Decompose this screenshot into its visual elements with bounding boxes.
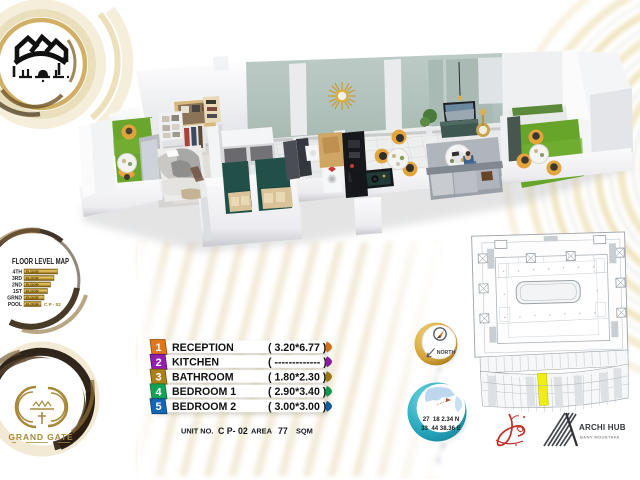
svg-text:4: 4 (155, 386, 162, 398)
svg-text:( 3.20*6.77 ): ( 3.20*6.77 ) (268, 342, 326, 354)
svg-text:( 1.80*2.30 ): ( 1.80*2.30 ) (268, 371, 326, 383)
svg-text:C P - 02: C P - 02 (44, 302, 61, 307)
svg-text:3RD: 3RD (12, 276, 22, 282)
svg-text:BEDROOM 2: BEDROOM 2 (172, 401, 236, 413)
svg-text:AREA: AREA (251, 427, 273, 436)
svg-text:3: 3 (155, 372, 161, 384)
svg-text:FLOOR: FLOOR (26, 290, 39, 294)
svg-text:GRAND GATE: GRAND GATE (8, 432, 73, 442)
svg-text:77: 77 (278, 426, 288, 436)
svg-text:1ST: 1ST (13, 289, 22, 295)
svg-text:FLOOR: FLOOR (26, 283, 39, 287)
svg-text:( 2.90*3.40 ): ( 2.90*3.40 ) (268, 386, 326, 398)
svg-text:KITCHEN: KITCHEN (172, 357, 219, 369)
svg-text:BEDROOM 1: BEDROOM 1 (172, 386, 236, 398)
svg-text:C P- 02: C P- 02 (218, 426, 248, 436)
svg-text:FLOOR: FLOOR (26, 303, 39, 307)
svg-text:NORTH: NORTH (437, 350, 456, 356)
svg-text:SQM: SQM (296, 427, 313, 436)
svg-text:2: 2 (155, 357, 161, 369)
svg-text:4TH: 4TH (13, 270, 23, 276)
svg-text:GRND: GRND (7, 296, 22, 302)
svg-text:ARCHI HUB: ARCHI HUB (579, 423, 626, 432)
svg-text:BATHROOM: BATHROOM (172, 371, 234, 383)
svg-text:FLOOR: FLOOR (26, 296, 39, 300)
svg-text:27 18 2.34 N: 27 18 2.34 N (423, 416, 460, 423)
svg-text:33 44 38.36 E: 33 44 38.36 E (421, 425, 461, 432)
svg-text:FLOOR LEVEL MAP: FLOOR LEVEL MAP (12, 257, 69, 266)
svg-text:FLOOR: FLOOR (26, 270, 39, 274)
svg-text:RECEPTION: RECEPTION (172, 342, 234, 354)
svg-text:BANY MOUSTAFA: BANY MOUSTAFA (580, 435, 620, 440)
svg-text:1: 1 (155, 342, 161, 354)
svg-text:( 3.00*3.00 ): ( 3.00*3.00 ) (268, 401, 326, 413)
svg-text:POOL: POOL (8, 302, 22, 308)
svg-text:( ------------- ): ( ------------- ) (268, 357, 327, 369)
svg-text:FLOOR: FLOOR (26, 277, 39, 281)
svg-text:2ND: 2ND (12, 283, 22, 289)
svg-text:5: 5 (155, 401, 161, 413)
svg-text:UNIT NO.: UNIT NO. (181, 427, 213, 436)
